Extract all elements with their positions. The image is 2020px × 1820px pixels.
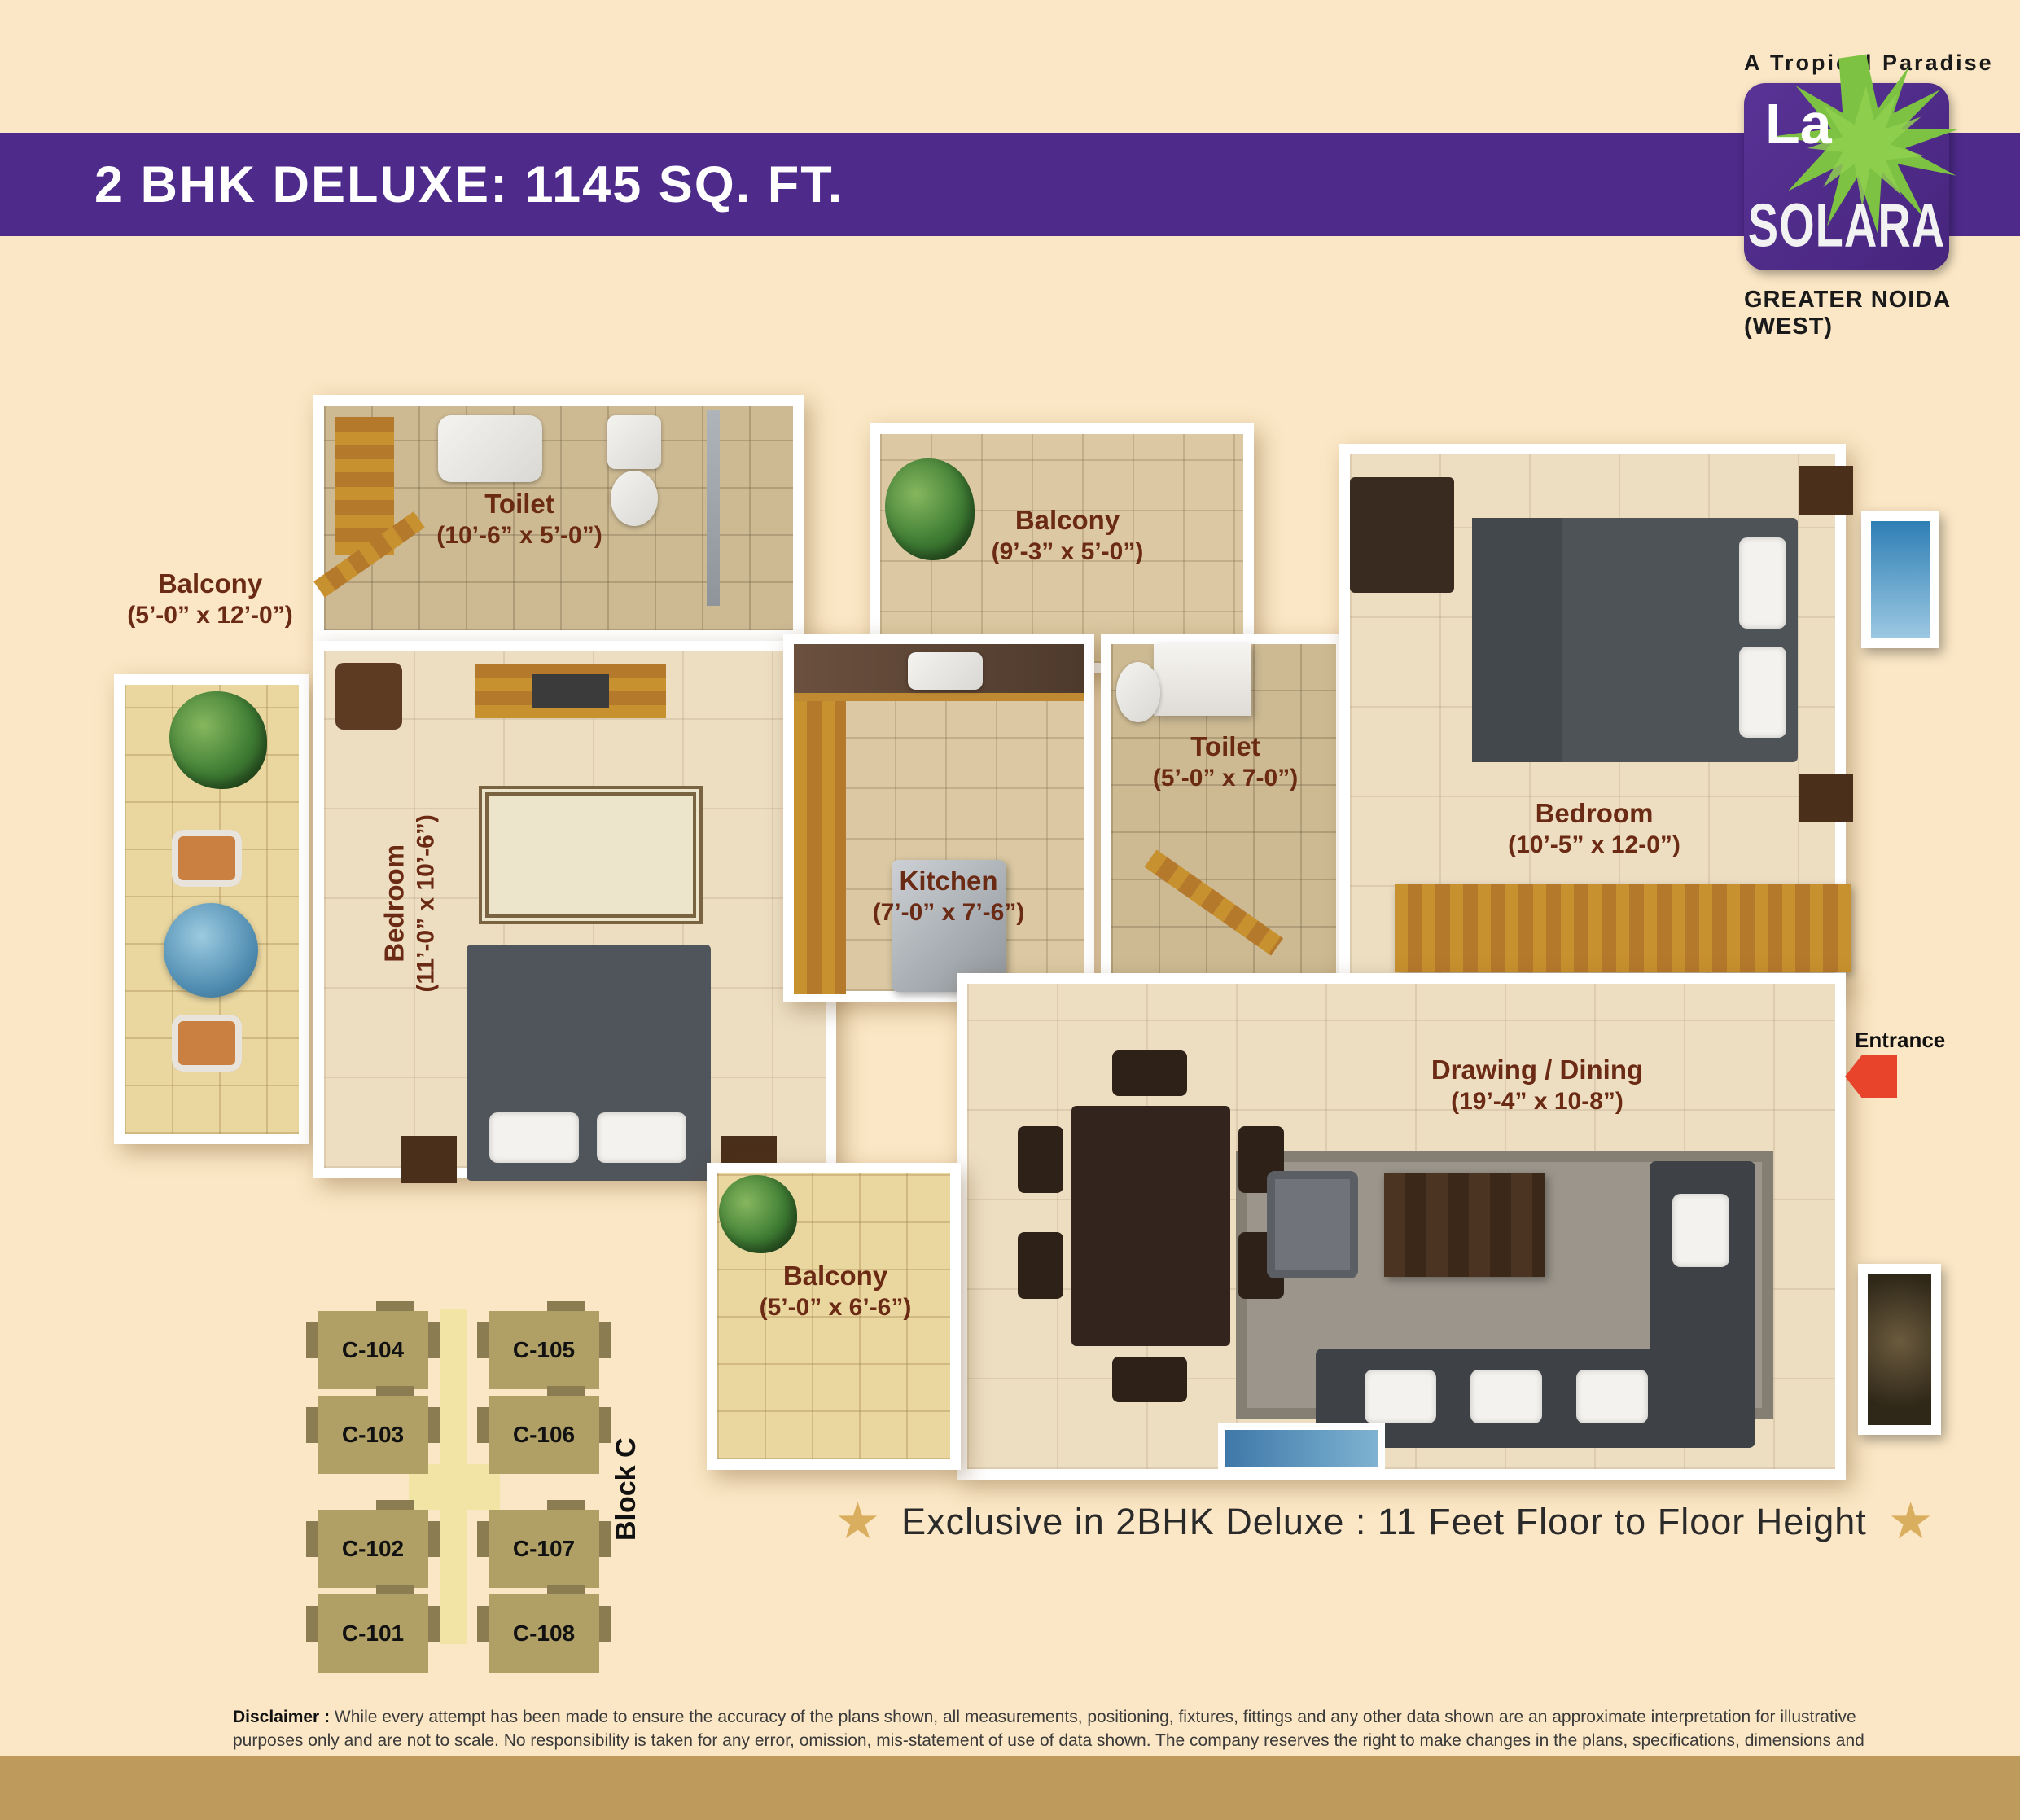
floor-art	[1218, 1423, 1385, 1474]
toilet-tank	[607, 415, 661, 469]
room-label-bedroom-right: Bedroom (10’-5” x 12-0”)	[1423, 796, 1765, 861]
keyplan-unit-c103: C-103	[318, 1396, 428, 1474]
la-solara-logo: La SOLARA	[1744, 83, 1949, 270]
plant-icon	[719, 1175, 797, 1253]
unit-tab	[547, 1585, 585, 1594]
unit-label: C-101	[342, 1620, 404, 1647]
unit-label: C-105	[513, 1337, 575, 1363]
room-balcony-bottom: Balcony (5’-0” x 6’-6”)	[707, 1163, 961, 1470]
keyplan-unit-c102: C-102	[318, 1510, 428, 1588]
unit-label: C-107	[513, 1536, 575, 1562]
disclaimer-label: Disclaimer :	[233, 1708, 330, 1726]
pillow	[489, 1112, 579, 1163]
nightstand	[401, 1136, 457, 1183]
floor-art-canvas	[1225, 1430, 1378, 1467]
pillow	[1739, 537, 1786, 629]
sofa-cushion	[1576, 1370, 1648, 1423]
brochure-page: 2 BHK DELUXE: 1145 SQ. FT. A Tropical Pa…	[0, 0, 2020, 1820]
sofa-chaise	[1650, 1161, 1755, 1448]
exclusive-note: ★ Exclusive in 2BHK Deluxe : 11 Feet Flo…	[830, 1497, 1938, 1547]
pillow	[597, 1112, 686, 1163]
keyplan-unit-c106: C-106	[489, 1396, 599, 1474]
unit-label: C-103	[342, 1422, 404, 1448]
keyplan-unit-c101: C-101	[318, 1594, 428, 1673]
balcony-chair	[172, 830, 242, 887]
bedroom-chair	[335, 663, 402, 730]
room-label-balcony-top: Balcony (9’-3” x 5’-0”)	[949, 503, 1185, 568]
dining-chair	[1112, 1050, 1187, 1096]
bedroom-cabinet	[1350, 477, 1454, 593]
unit-tab	[376, 1500, 414, 1510]
keyplan-block-label: Block C	[611, 1437, 642, 1541]
bed	[1472, 518, 1798, 762]
wall-art-dark-canvas	[1868, 1274, 1931, 1425]
logo-text-la: La	[1765, 91, 1832, 156]
entrance-arrow-icon	[1845, 1055, 1897, 1098]
sofa-cushion	[1470, 1370, 1542, 1423]
room-drawing-dining: Drawing / Dining (19’-4” x 10-8”)	[957, 973, 1846, 1480]
unit-tab	[547, 1301, 585, 1311]
dresser	[475, 664, 666, 718]
room-label-drawing-dining: Drawing / Dining (19’-4” x 10-8”)	[1325, 1053, 1749, 1117]
shower-partition	[707, 410, 720, 606]
logo-text-solara: SOLARA	[1744, 189, 1949, 261]
nightstand	[1799, 466, 1853, 515]
bottom-bar	[0, 1756, 2020, 1820]
unit-tab	[376, 1585, 414, 1594]
room-label-toilet-left: Toilet (10’-6” x 5’-0”)	[397, 487, 642, 551]
key-plan: C-104 C-105 C-103 C-106 C-102 C-107 C-10…	[287, 1296, 669, 1655]
sofa-cushion	[1672, 1194, 1729, 1267]
balcony-chair	[172, 1015, 242, 1072]
kitchen-sink	[908, 652, 983, 690]
dining-chair	[1018, 1232, 1063, 1299]
room-label-balcony-left: Balcony (5’-0” x 12’-0”)	[92, 567, 328, 631]
toilet-door	[1145, 849, 1284, 955]
dresser-top-item	[532, 674, 609, 708]
washbasin	[1116, 662, 1160, 722]
page-title: 2 BHK DELUXE: 1145 SQ. FT.	[94, 156, 843, 214]
toilet-partition	[1154, 644, 1251, 716]
star-icon: ★	[835, 1497, 881, 1547]
armchair	[1267, 1171, 1358, 1278]
keyplan-unit-c107: C-107	[489, 1510, 599, 1588]
unit-tab	[376, 1301, 414, 1311]
room-bedroom-right: Bedroom (10’-5” x 12-0”)	[1339, 444, 1846, 987]
unit-label: C-106	[513, 1422, 575, 1448]
room-toilet-mid: Toilet (5’-0” x 7-0”)	[1101, 634, 1347, 985]
unit-tab	[547, 1386, 585, 1396]
sofa-cushion	[1365, 1370, 1436, 1423]
brand-location: GREATER NOIDA (WEST)	[1744, 287, 2020, 340]
keyplan-unit-c104: C-104	[318, 1311, 428, 1389]
dining-chair	[1112, 1357, 1187, 1402]
title-banner: 2 BHK DELUXE: 1145 SQ. FT.	[0, 133, 2020, 236]
unit-label: C-104	[342, 1337, 404, 1363]
washbasin	[438, 415, 542, 482]
unit-label: C-102	[342, 1536, 404, 1562]
bed-blanket	[1472, 518, 1562, 762]
dining-chair	[1018, 1126, 1063, 1193]
room-toilet-left: Toilet (10’-6” x 5’-0”)	[313, 395, 804, 641]
room-label-balcony-bottom: Balcony (5’-0” x 6’-6”)	[717, 1259, 953, 1323]
balcony-table	[164, 903, 258, 998]
room-bedroom-left: Bedroom (11’-0” x 10’-6”)	[313, 641, 836, 1178]
room-label-toilet-mid: Toilet (5’-0” x 7-0”)	[1103, 730, 1347, 794]
unit-tab	[376, 1386, 414, 1396]
wall-art-blue-canvas	[1871, 521, 1930, 638]
dining-table	[1071, 1106, 1230, 1346]
bedroom-rug	[479, 786, 703, 924]
room-balcony-left: Balcony (5’-0” x 12’-0”)	[114, 674, 309, 1144]
keyplan-unit-c105: C-105	[489, 1311, 599, 1389]
exclusive-note-text: Exclusive in 2BHK Deluxe : 11 Feet Floor…	[901, 1501, 1867, 1543]
pillow	[1739, 647, 1786, 738]
kitchen-counter-left	[794, 701, 846, 994]
unit-label: C-108	[513, 1620, 575, 1647]
wall-art-dark	[1858, 1264, 1941, 1435]
star-icon: ★	[1888, 1497, 1934, 1547]
entrance-label: Entrance	[1855, 1028, 1945, 1053]
nightstand	[1799, 774, 1853, 822]
unit-tab	[547, 1500, 585, 1510]
plant-icon	[169, 691, 267, 789]
wooden-chest	[1384, 1173, 1545, 1277]
room-label-bedroom-left: Bedroom (11’-0” x 10’-6”)	[378, 769, 442, 1037]
wall-art-blue	[1861, 511, 1939, 648]
room-label-kitchen: Kitchen (7’-0” x 7’-6”)	[826, 864, 1071, 928]
wardrobe-bench	[1395, 884, 1851, 972]
bed	[467, 945, 711, 1181]
keyplan-unit-c108: C-108	[489, 1594, 599, 1673]
room-kitchen: Kitchen (7’-0” x 7’-6”)	[783, 634, 1094, 1002]
